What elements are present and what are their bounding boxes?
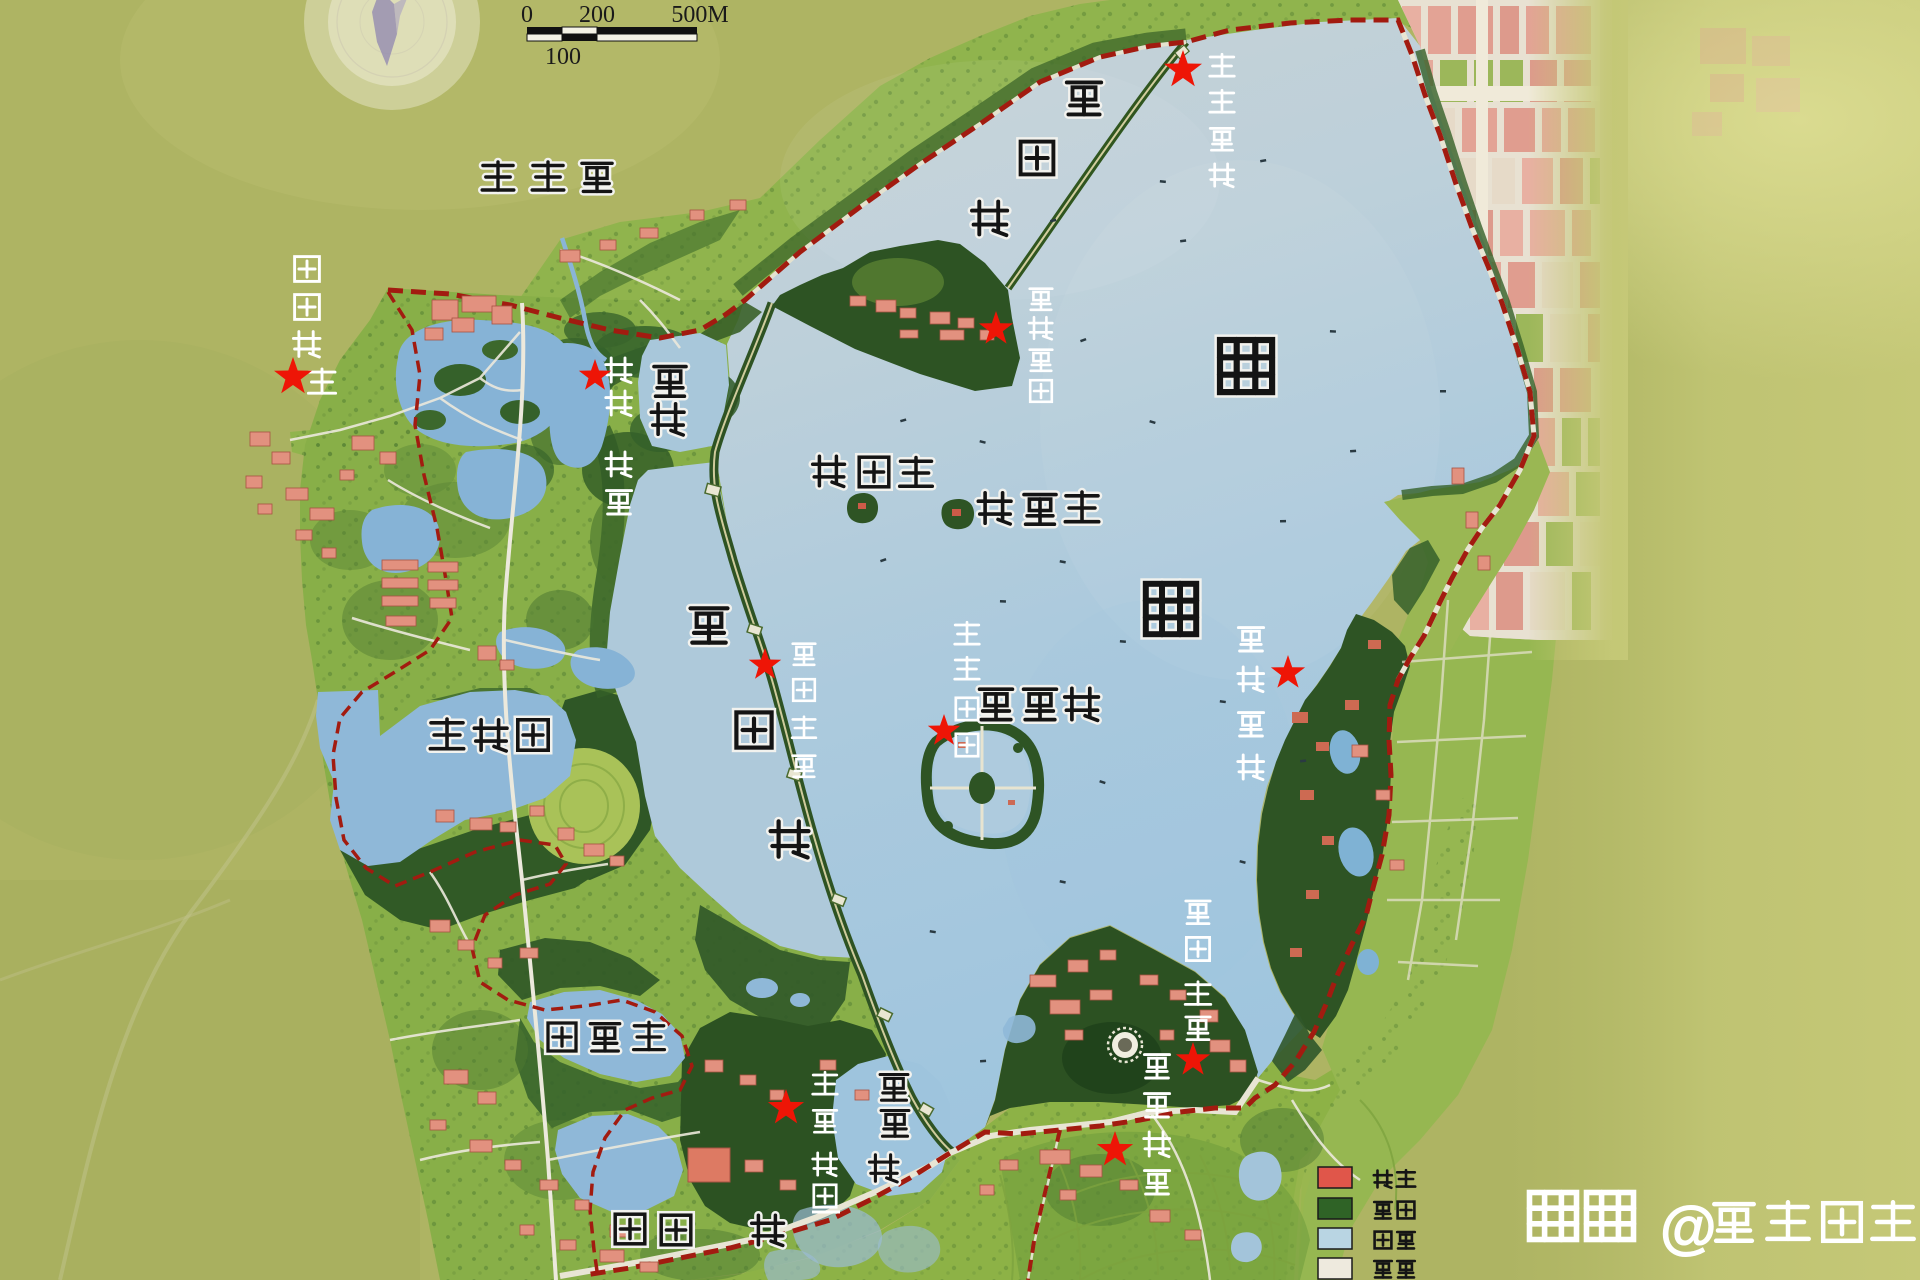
svg-text:200: 200 (579, 2, 615, 28)
svg-text:@: @ (1660, 1195, 1717, 1260)
svg-text:100: 100 (545, 44, 581, 70)
svg-text:500M: 500M (671, 2, 728, 28)
svg-text:0: 0 (521, 2, 533, 28)
